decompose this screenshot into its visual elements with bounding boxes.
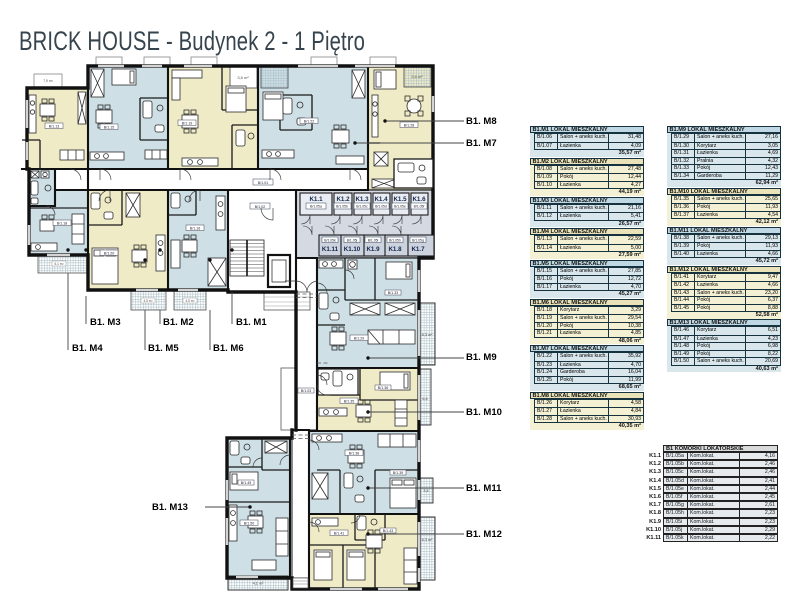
svg-text:B/1.33: B/1.33 [388, 291, 398, 295]
svg-text:B/1.05d: B/1.05d [375, 205, 387, 209]
svg-text:B/1.28: B/1.28 [404, 123, 414, 127]
svg-text:B/1.50: B/1.50 [244, 521, 254, 525]
svg-text:8,3 m²: 8,3 m² [422, 333, 433, 337]
svg-text:B/1.20: B/1.20 [104, 251, 114, 255]
svg-text:B/1.41: B/1.41 [334, 531, 344, 535]
svg-text:B/1.16: B/1.16 [190, 226, 200, 230]
svg-text:4,1 m²: 4,1 m² [253, 582, 264, 586]
svg-text:B/1.15: B/1.15 [104, 125, 114, 129]
svg-text:K1.8: K1.8 [388, 246, 402, 253]
svg-text:B/1.43: B/1.43 [383, 529, 393, 533]
svg-text:B/1.39: B/1.39 [393, 471, 403, 475]
svg-text:B/1.05f: B/1.05f [414, 205, 425, 209]
svg-text:K1.2: K1.2 [336, 196, 350, 203]
svg-text:3,6 m²: 3,6 m² [237, 75, 249, 80]
svg-text:B/1.03: B/1.03 [301, 389, 311, 393]
svg-text:K1.6: K1.6 [412, 196, 426, 203]
svg-text:4,5 m²: 4,5 m² [185, 299, 194, 303]
svg-text:3,6 m²: 3,6 m² [411, 74, 423, 79]
svg-text:B/1.05k: B/1.05k [324, 239, 336, 243]
svg-text:B/1.05c: B/1.05c [356, 205, 368, 209]
svg-text:3,4: 3,4 [423, 489, 428, 493]
svg-text:B/1.19: B/1.19 [182, 121, 192, 125]
svg-text:B/1.29: B/1.29 [354, 336, 364, 340]
svg-text:B/1.35: B/1.35 [344, 399, 354, 403]
svg-text:B/1.05g: B/1.05g [412, 239, 424, 243]
svg-text:B/1.05i: B/1.05i [368, 239, 379, 243]
svg-text:B/1.38: B/1.38 [349, 451, 359, 455]
svg-text:K1.4: K1.4 [374, 196, 388, 203]
svg-text:K1.10: K1.10 [344, 246, 361, 253]
svg-text:6,6: 6,6 [422, 397, 427, 401]
svg-text:K1.3: K1.3 [355, 196, 369, 203]
svg-text:K1.1: K1.1 [309, 196, 323, 203]
svg-text:7,9 m²: 7,9 m² [43, 79, 53, 83]
svg-text:K1.7: K1.7 [411, 246, 425, 253]
svg-text:B/1.05h: B/1.05h [389, 239, 401, 243]
svg-text:B/1.13: B/1.13 [49, 124, 59, 128]
svg-text:B/1.49: B/1.49 [241, 481, 251, 485]
svg-text:B/1.02: B/1.02 [255, 205, 265, 209]
svg-text:K1.5: K1.5 [393, 196, 407, 203]
svg-text:B/1.22: B/1.22 [304, 119, 314, 123]
svg-text:B/1.18: B/1.18 [57, 221, 67, 225]
svg-text:B/1.05a: B/1.05a [310, 205, 322, 209]
svg-text:K1.11: K1.11 [322, 246, 339, 253]
svg-text:6,3 m²: 6,3 m² [422, 538, 433, 542]
svg-text:4,5 m²: 4,5 m² [143, 299, 152, 303]
svg-text:B/1.05j: B/1.05j [347, 239, 358, 243]
svg-text:B/1.05b: B/1.05b [336, 205, 348, 209]
svg-text:K1.9: K1.9 [366, 246, 380, 253]
svg-text:B/1.36: B/1.36 [378, 386, 388, 390]
svg-text:B/1.05e: B/1.05e [394, 205, 406, 209]
svg-text:B/1.01: B/1.01 [258, 181, 268, 185]
svg-text:5,1 m²: 5,1 m² [54, 262, 63, 266]
